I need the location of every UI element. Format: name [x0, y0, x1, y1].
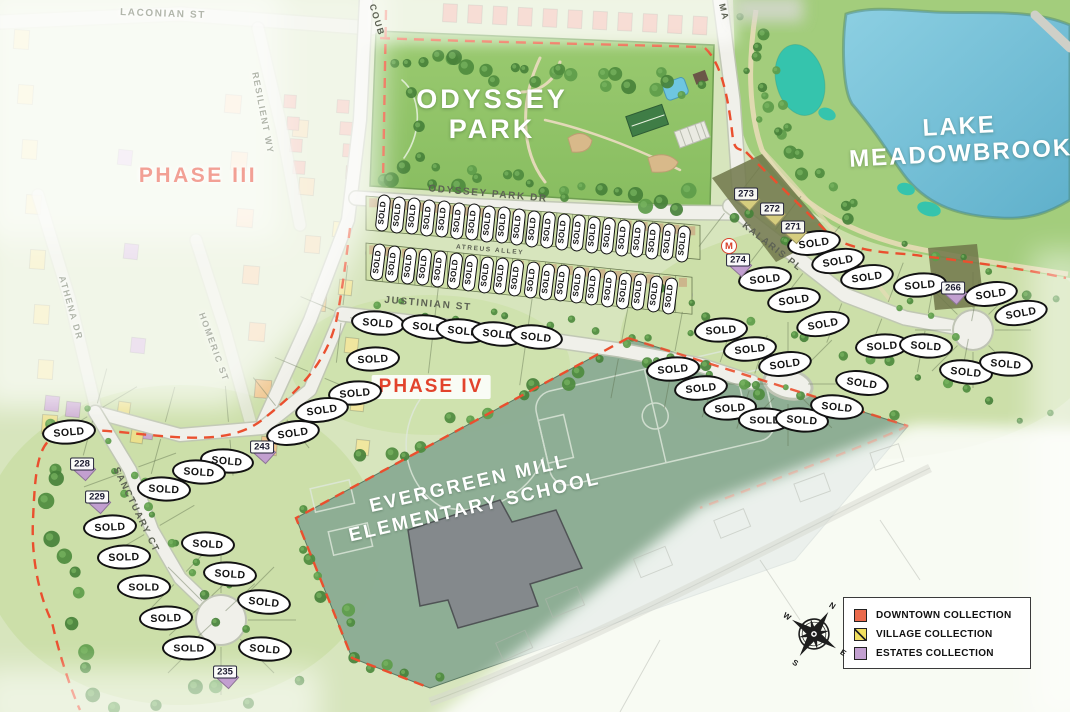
sold-marker-townhome[interactable]: SOLD — [461, 254, 478, 292]
legend-item-estates-collection: ESTATES COLLECTION — [854, 644, 1030, 663]
sold-marker[interactable]: SOLD — [82, 513, 137, 541]
sold-marker[interactable]: SOLD — [139, 605, 194, 632]
sold-marker-townhome[interactable]: SOLD — [570, 214, 587, 252]
sold-marker-townhome[interactable]: SOLD — [615, 219, 632, 257]
legend-item-downtown-collection: DOWNTOWN COLLECTION — [854, 606, 1030, 625]
sold-marker-townhome[interactable]: SOLD — [555, 213, 572, 251]
sold-marker-townhome[interactable]: SOLD — [525, 209, 542, 247]
sold-marker[interactable]: SOLD — [350, 308, 406, 338]
street-label-atreus-alley: ATREUS ALLEY — [456, 244, 525, 257]
lot-tag-271[interactable]: 271 — [781, 221, 805, 234]
sold-marker[interactable]: SOLD — [236, 587, 292, 618]
street-label-laconian-st: LACONIAN ST — [120, 7, 206, 21]
sold-marker[interactable]: SOLD — [508, 322, 564, 353]
model-home-badge: M — [721, 238, 737, 254]
compass-s: S — [791, 658, 800, 668]
street-label-resilient-wy: RESILIENT WY — [250, 71, 276, 155]
odyssey-park-label: ODYSSEYPARK — [416, 84, 568, 144]
sold-marker-townhome[interactable]: SOLD — [420, 199, 437, 237]
sold-marker-townhome[interactable]: SOLD — [405, 197, 422, 235]
legend-swatch-village-collection — [854, 628, 867, 641]
sold-marker-townhome[interactable]: SOLD — [400, 246, 417, 284]
sold-marker[interactable]: SOLD — [345, 345, 400, 373]
sold-marker-townhome[interactable]: SOLD — [385, 245, 402, 283]
sold-marker-townhome[interactable]: SOLD — [450, 202, 467, 240]
legend-label: DOWNTOWN COLLECTION — [876, 610, 1012, 621]
sold-marker-townhome[interactable]: SOLD — [585, 216, 602, 254]
sold-marker-townhome[interactable]: SOLD — [508, 259, 525, 297]
sold-marker[interactable]: SOLD — [202, 560, 258, 589]
lot-tag-272[interactable]: 272 — [760, 203, 784, 216]
sold-marker[interactable]: SOLD — [892, 270, 948, 300]
sold-marker[interactable]: SOLD — [117, 575, 171, 600]
site-plan-map: ODYSSEYPARK LAKEMEADOWBROOK EVERGREEN MI… — [0, 0, 1070, 712]
sold-marker-townhome[interactable]: SOLD — [645, 222, 662, 260]
sold-marker-townhome[interactable]: SOLD — [540, 211, 557, 249]
sold-marker-townhome[interactable]: SOLD — [465, 203, 482, 241]
sold-marker-townhome[interactable]: SOLD — [660, 223, 677, 261]
lot-tag-273[interactable]: 273 — [734, 188, 758, 201]
street-label-ma: MA — [717, 2, 731, 21]
lot-tag-229[interactable]: 229 — [85, 491, 109, 504]
sold-marker-townhome[interactable]: SOLD — [390, 195, 407, 233]
compass-star — [775, 595, 852, 672]
street-label-homeric-st: HOMERIC ST — [197, 311, 231, 383]
sold-marker[interactable]: SOLD — [237, 634, 293, 664]
sold-marker-townhome[interactable]: SOLD — [495, 206, 512, 244]
sold-marker[interactable]: SOLD — [794, 307, 852, 341]
sold-marker[interactable]: SOLD — [162, 636, 216, 661]
sold-marker-townhome[interactable]: SOLD — [675, 225, 692, 263]
legend-swatch-downtown-collection — [854, 609, 867, 622]
lot-tag-266[interactable]: 266 — [941, 282, 965, 295]
lake-meadowbrook-label: LAKEMEADOWBROOK — [847, 107, 1070, 173]
phase-3-label: PHASE III — [139, 164, 257, 188]
sold-marker-townhome[interactable]: SOLD — [584, 268, 601, 306]
legend-label: ESTATES COLLECTION — [876, 648, 994, 659]
lot-tag-243[interactable]: 243 — [250, 441, 274, 454]
legend-item-village-collection: VILLAGE COLLECTION — [854, 625, 1030, 644]
sold-marker-townhome[interactable]: SOLD — [477, 255, 494, 293]
sold-marker[interactable]: SOLD — [898, 332, 954, 361]
compass-rose: N E S W — [775, 595, 852, 672]
sold-marker[interactable]: SOLD — [41, 417, 97, 447]
sold-marker-townhome[interactable]: SOLD — [523, 261, 540, 299]
school-label: EVERGREEN MILLELEMENTARY SCHOOL — [341, 444, 603, 549]
phase-4-label: PHASE IV — [372, 375, 491, 399]
sold-marker-townhome[interactable]: SOLD — [431, 250, 448, 288]
sold-marker-townhome[interactable]: SOLD — [661, 277, 678, 315]
compass-n: N — [827, 601, 837, 612]
legend-label: VILLAGE COLLECTION — [876, 629, 993, 640]
sold-marker[interactable]: SOLD — [180, 530, 235, 558]
lot-tag-235[interactable]: 235 — [213, 666, 237, 679]
sold-marker-townhome[interactable]: SOLD — [631, 273, 648, 311]
lot-tag-274[interactable]: 274 — [726, 254, 750, 267]
sold-marker-townhome[interactable]: SOLD — [630, 220, 647, 258]
legend-swatch-estates-collection — [854, 647, 867, 660]
sold-marker-townhome[interactable]: SOLD — [646, 275, 663, 313]
sold-marker-townhome[interactable]: SOLD — [480, 205, 497, 243]
street-label-coub: COUB — [367, 3, 386, 37]
sold-marker-townhome[interactable]: SOLD — [446, 252, 463, 290]
sold-marker-townhome[interactable]: SOLD — [375, 194, 392, 232]
sold-marker-townhome[interactable]: SOLD — [600, 270, 617, 308]
street-label-athena-dr: ATHENA DR — [57, 275, 85, 342]
sold-marker-townhome[interactable]: SOLD — [569, 266, 586, 304]
lot-tag-228[interactable]: 228 — [70, 458, 94, 471]
sold-marker[interactable]: SOLD — [97, 544, 152, 571]
sold-marker-townhome[interactable]: SOLD — [600, 217, 617, 255]
sold-marker-townhome[interactable]: SOLD — [510, 208, 527, 246]
sold-marker-townhome[interactable]: SOLD — [554, 264, 571, 302]
legend: DOWNTOWN COLLECTIONVILLAGE COLLECTIONEST… — [843, 597, 1031, 669]
sold-marker-townhome[interactable]: SOLD — [435, 200, 452, 238]
street-label-justinian-st: JUSTINIAN ST — [384, 295, 472, 314]
